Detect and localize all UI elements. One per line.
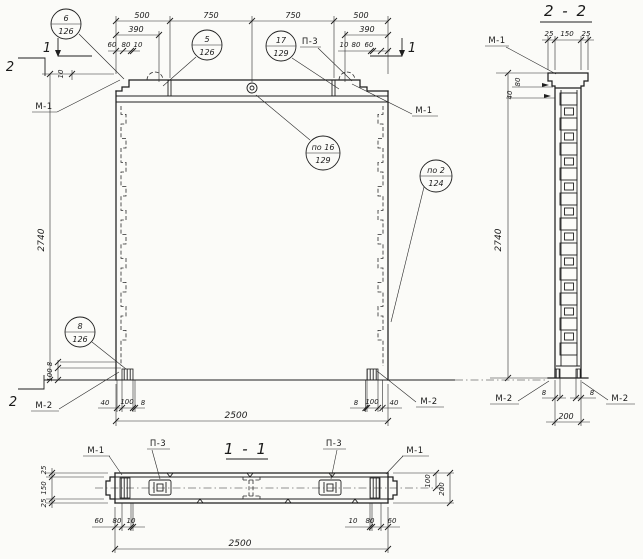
cut-mark-2-top: 2 xyxy=(6,58,45,76)
embed-plate-left xyxy=(122,369,133,380)
svg-text:25: 25 xyxy=(545,30,554,38)
svg-text:М-1: М-1 xyxy=(406,446,423,456)
drawing-sheet: 500 750 750 500 390 390 60 80 10 10 xyxy=(0,0,643,559)
dim-22-cap: 80 40 xyxy=(506,77,551,99)
balloon-5-126: 5 126 xyxy=(163,30,222,86)
svg-text:М-1: М-1 xyxy=(87,446,104,456)
dim-22-overall: 200 xyxy=(546,412,590,425)
svg-text:8: 8 xyxy=(77,322,82,331)
dim-390-right: 390 xyxy=(342,25,391,38)
dim-11-edge-right: 10 80 60 xyxy=(345,517,400,530)
svg-text:10: 10 xyxy=(127,517,136,525)
dim-corner-vertical: 8 100 xyxy=(46,359,61,383)
svg-text:6: 6 xyxy=(63,14,68,23)
svg-text:М-2: М-2 xyxy=(495,394,512,404)
svg-text:126: 126 xyxy=(72,335,87,344)
svg-text:80: 80 xyxy=(366,517,375,525)
svg-text:М-1: М-1 xyxy=(488,36,505,46)
p3-box-left xyxy=(149,480,171,495)
svg-text:по 2: по 2 xyxy=(427,166,445,175)
svg-text:150: 150 xyxy=(40,481,48,495)
void-cell xyxy=(565,208,574,215)
void-cell xyxy=(560,318,577,330)
dim-edge-top-right: 10 80 60 xyxy=(338,41,391,54)
svg-text:25: 25 xyxy=(40,498,48,507)
void-cell xyxy=(560,168,577,180)
label-m1-top-left: М-1 xyxy=(32,80,120,112)
void-cell xyxy=(560,343,577,355)
dim-overall-2500: 2500 xyxy=(113,411,391,424)
void-cell xyxy=(565,133,574,140)
void-cell xyxy=(565,158,574,165)
void-cell xyxy=(560,193,577,205)
svg-text:40: 40 xyxy=(390,399,399,407)
void-cell xyxy=(565,233,574,240)
svg-text:40: 40 xyxy=(506,90,514,99)
svg-text:60: 60 xyxy=(388,517,397,525)
section-1-1-title: 1 - 1 xyxy=(224,440,268,458)
p3-box-right xyxy=(319,480,341,495)
svg-text:8: 8 xyxy=(141,399,146,407)
label-m2-section22-left: М-2 xyxy=(490,381,549,404)
svg-text:80: 80 xyxy=(352,41,361,49)
dim-11-right: 100 200 xyxy=(424,470,453,506)
label-m1-section22: М-1 xyxy=(485,36,556,74)
svg-text:60: 60 xyxy=(95,517,104,525)
svg-text:М-2: М-2 xyxy=(420,397,437,407)
svg-text:8: 8 xyxy=(542,389,547,397)
svg-text:1: 1 xyxy=(408,41,416,56)
svg-text:80: 80 xyxy=(122,41,131,49)
svg-text:17: 17 xyxy=(276,36,287,45)
svg-text:40: 40 xyxy=(101,399,110,407)
dim-22-height: 2740 xyxy=(494,70,511,381)
svg-text:2500: 2500 xyxy=(225,411,248,421)
void-cell xyxy=(560,143,577,155)
svg-text:М-2: М-2 xyxy=(611,394,628,404)
svg-text:П-3: П-3 xyxy=(326,439,342,449)
svg-text:100: 100 xyxy=(120,398,134,406)
svg-text:25: 25 xyxy=(582,30,591,38)
void-cell xyxy=(560,218,577,230)
svg-text:124: 124 xyxy=(428,179,443,188)
label-m1-section11-right: М-1 xyxy=(386,446,429,474)
section-2-2-view: 2 - 2 25 150 25 80 40 2740 xyxy=(485,2,635,426)
svg-text:200: 200 xyxy=(558,412,573,421)
void-cell xyxy=(565,308,574,315)
svg-text:2740: 2740 xyxy=(37,228,47,251)
dim-500-right: 500 xyxy=(353,11,368,20)
dim-height-2740: 2740 xyxy=(37,71,53,383)
svg-text:100: 100 xyxy=(365,398,379,406)
svg-text:150: 150 xyxy=(560,30,574,38)
void-cell xyxy=(565,283,574,290)
void-cell xyxy=(565,258,574,265)
svg-text:10: 10 xyxy=(134,41,143,49)
svg-text:100: 100 xyxy=(424,474,432,488)
void-cell xyxy=(565,183,574,190)
main-elevation-view: 500 750 750 500 390 390 60 80 10 10 xyxy=(6,9,548,426)
section-embed-left xyxy=(555,369,560,378)
svg-text:60: 60 xyxy=(108,41,117,49)
panel-drawing: 500 750 750 500 390 390 60 80 10 10 xyxy=(0,0,643,559)
dim-500-left: 500 xyxy=(134,11,149,20)
svg-text:10: 10 xyxy=(349,517,358,525)
void-cell xyxy=(560,93,577,105)
section-2-2-title: 2 - 2 xyxy=(544,2,588,20)
section-strip-outline xyxy=(548,73,588,378)
panel-top-band-lines xyxy=(116,96,388,102)
void-cell xyxy=(560,243,577,255)
dim-22-top-chain: 25 150 25 xyxy=(542,30,594,43)
svg-text:200: 200 xyxy=(438,482,446,496)
dim-750-right: 750 xyxy=(285,11,300,20)
lifting-loop-inner xyxy=(250,86,254,90)
svg-text:129: 129 xyxy=(273,49,288,58)
void-cell xyxy=(560,118,577,130)
keyed-edge-left xyxy=(121,106,126,366)
svg-text:80: 80 xyxy=(113,517,122,525)
section-embed-right xyxy=(576,369,581,378)
dim-11-thickness: 25 150 25 xyxy=(40,465,55,508)
svg-text:60: 60 xyxy=(365,41,374,49)
balloon-po2-124: по 2 124 xyxy=(391,160,452,322)
svg-text:126: 126 xyxy=(58,27,73,36)
top-slot-dividers xyxy=(168,80,335,96)
svg-text:М-1: М-1 xyxy=(35,102,52,112)
dim-11-edge-left: 60 80 10 xyxy=(92,517,145,530)
section-1-1-view: 1 - 1 25 150 xyxy=(40,439,454,553)
hidden-loop-arc-left xyxy=(147,72,163,80)
svg-text:по 16: по 16 xyxy=(312,143,335,152)
balloon-po16-129: по 16 129 xyxy=(256,95,340,170)
svg-text:8: 8 xyxy=(46,361,54,366)
svg-text:2: 2 xyxy=(9,395,17,410)
lifting-loop-outer xyxy=(247,83,257,93)
svg-text:1: 1 xyxy=(43,41,51,56)
svg-text:10: 10 xyxy=(57,69,65,78)
embed-plate-right xyxy=(367,369,378,380)
label-m1-top-right: М-1 xyxy=(352,84,438,116)
svg-text:129: 129 xyxy=(315,156,330,165)
dim-22-edge: 8 8 xyxy=(542,389,596,401)
svg-text:М-2: М-2 xyxy=(35,401,52,411)
svg-text:390: 390 xyxy=(128,25,143,34)
svg-text:80: 80 xyxy=(514,77,522,86)
label-m2-bottom-right: М-2 xyxy=(377,371,444,407)
dim-390-left: 390 xyxy=(113,25,162,38)
svg-text:390: 390 xyxy=(359,25,374,34)
dim-edge-top-left: 60 80 10 xyxy=(108,41,143,54)
svg-text:П-3: П-3 xyxy=(302,37,318,47)
svg-text:М-1: М-1 xyxy=(415,106,432,116)
label-m1-section11-left: М-1 xyxy=(83,446,122,475)
svg-text:126: 126 xyxy=(199,48,214,57)
svg-text:П-3: П-3 xyxy=(150,439,166,449)
void-cell xyxy=(560,268,577,280)
svg-text:5: 5 xyxy=(204,35,209,44)
extension-lines-main xyxy=(42,16,388,426)
balloon-8-126: 8 126 xyxy=(65,317,126,369)
svg-text:10: 10 xyxy=(340,41,349,49)
svg-text:2740: 2740 xyxy=(494,228,504,251)
dim-corner-right: 8 100 40 xyxy=(350,398,402,411)
extension-lines-section22 xyxy=(490,36,588,426)
cut-mark-1-right: 1 xyxy=(370,38,416,57)
cut-mark-1-left: 1 xyxy=(43,38,92,57)
svg-text:25: 25 xyxy=(40,465,48,474)
svg-text:2500: 2500 xyxy=(229,539,252,549)
dim-750-left: 750 xyxy=(203,11,218,20)
hollow-core-voids xyxy=(560,93,577,355)
void-cell xyxy=(565,333,574,340)
void-cell xyxy=(565,108,574,115)
svg-text:8: 8 xyxy=(354,399,359,407)
keyed-edge-right xyxy=(378,106,383,366)
svg-text:100: 100 xyxy=(46,368,54,382)
dim-11-overall: 2500 xyxy=(112,539,391,552)
svg-text:2: 2 xyxy=(6,60,14,75)
void-cell xyxy=(560,293,577,305)
